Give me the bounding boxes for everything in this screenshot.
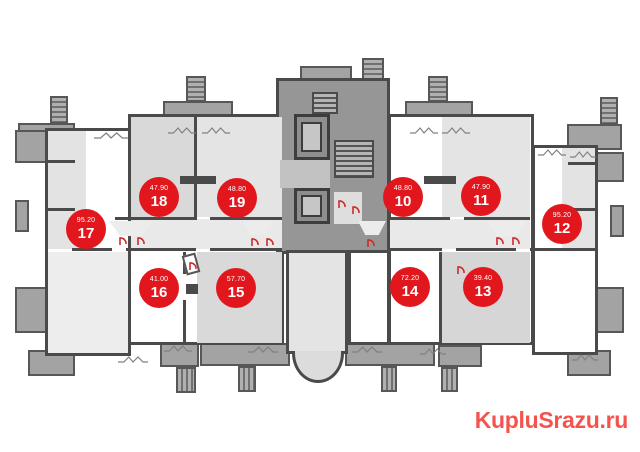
window-symbol <box>94 127 128 135</box>
window-bay-block <box>15 287 47 333</box>
wall <box>126 248 196 251</box>
wall-pier <box>424 176 456 184</box>
unit-number-label: 13 <box>475 284 492 299</box>
core-corridor-fill <box>280 160 330 188</box>
unit-badge-17: 95.2017 <box>66 209 106 249</box>
door-swing-icon <box>337 196 347 209</box>
window-symbol <box>420 343 446 351</box>
wall-pier <box>180 176 216 184</box>
wall <box>439 252 442 343</box>
wall <box>530 248 596 251</box>
unit-number-label: 10 <box>395 194 412 209</box>
window-symbol <box>168 122 196 130</box>
watermark: KupluSrazu.ru <box>475 407 628 434</box>
wall <box>72 248 112 251</box>
wall <box>456 248 516 251</box>
unit-number-label: 11 <box>473 193 489 208</box>
window-bay-block <box>596 152 624 182</box>
unit-badge-11: 47.9011 <box>461 176 501 216</box>
floorplan-canvas: KupluSrazu.ru 95.201747.901848.801941.00… <box>0 0 640 452</box>
window-symbol <box>352 341 382 349</box>
window-symbol <box>248 341 278 349</box>
room-fill <box>48 252 128 353</box>
unit-badge-15: 57.7015 <box>216 268 256 308</box>
wall <box>568 162 598 165</box>
pillar-block <box>50 96 68 124</box>
wall <box>45 160 75 163</box>
pillar-block <box>441 367 458 392</box>
unit-badge-16: 41.0016 <box>139 268 179 308</box>
window-symbol <box>442 122 470 130</box>
window-symbol <box>538 144 566 152</box>
hall-room <box>348 250 390 345</box>
pillar-block <box>238 366 256 392</box>
window-bay-block <box>610 205 624 237</box>
door-swing-icon <box>511 233 521 246</box>
wall <box>390 217 450 220</box>
pillar-block <box>600 97 618 125</box>
window-symbol <box>202 122 230 130</box>
staircase <box>312 92 338 114</box>
unit-number-label: 16 <box>151 285 168 300</box>
wall <box>45 208 75 211</box>
pillar-block <box>428 76 448 102</box>
unit-badge-18: 47.9018 <box>139 177 179 217</box>
door-swing-icon <box>495 233 505 246</box>
wall <box>464 217 530 220</box>
door-swing-icon <box>351 202 361 215</box>
wall <box>115 217 197 220</box>
unit-number-label: 15 <box>228 285 245 300</box>
window-symbol <box>164 340 192 348</box>
unit-number-label: 12 <box>554 221 571 236</box>
door-swing-icon <box>366 235 376 248</box>
elevator-car <box>301 195 322 217</box>
door-swing-icon <box>250 234 260 247</box>
unit-badge-14: 72.2014 <box>390 267 430 307</box>
door-swing-icon <box>118 233 128 246</box>
unit-badge-19: 48.8019 <box>217 178 257 218</box>
door-swing-icon <box>188 258 198 271</box>
pillar-block <box>176 367 196 393</box>
window-bay-block <box>596 287 624 333</box>
elevator-car <box>301 122 322 152</box>
wall <box>210 217 282 220</box>
staircase <box>334 140 374 178</box>
door-swing-icon <box>136 233 146 246</box>
window-symbol <box>570 146 596 154</box>
curved-bay <box>292 351 344 383</box>
window-symbol <box>410 122 438 130</box>
unit-badge-10: 48.8010 <box>383 177 423 217</box>
unit-number-label: 18 <box>151 194 168 209</box>
unit-badge-13: 39.4013 <box>463 267 503 307</box>
window-bay-block <box>15 200 29 232</box>
door-swing-icon <box>456 262 466 275</box>
center-room <box>286 250 348 354</box>
unit-badge-12: 95.2012 <box>542 204 582 244</box>
pillar-block <box>381 366 397 392</box>
unit-number-label: 19 <box>229 195 246 210</box>
window-symbol <box>572 349 598 357</box>
door-swing-icon <box>265 234 275 247</box>
wall <box>210 248 282 251</box>
wall <box>390 248 442 251</box>
unit-number-label: 14 <box>402 284 419 299</box>
unit-number-label: 17 <box>78 226 95 241</box>
wall <box>183 300 186 343</box>
wall-pier <box>186 284 198 294</box>
window-symbol <box>118 351 148 359</box>
window-bay-block <box>15 130 47 163</box>
pillar-block <box>186 76 206 102</box>
